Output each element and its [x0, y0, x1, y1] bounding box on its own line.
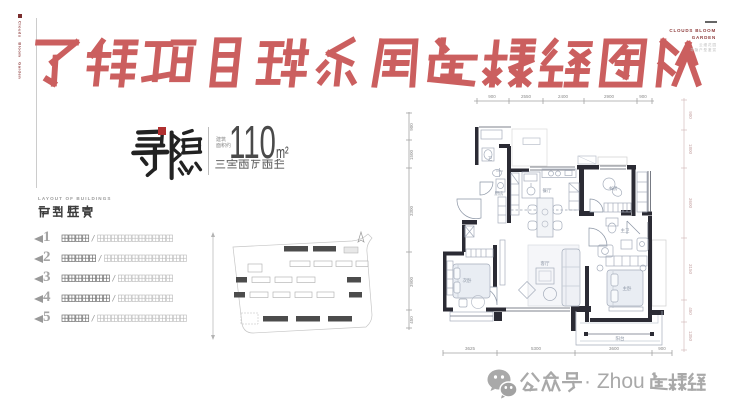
- svg-text:卫: 卫: [488, 156, 493, 161]
- svg-text:2400: 2400: [558, 94, 569, 99]
- svg-text:阳台: 阳台: [616, 335, 625, 342]
- svg-text:主卫: 主卫: [621, 227, 630, 233]
- svg-text:1500: 1500: [409, 149, 414, 160]
- svg-text:2550: 2550: [521, 94, 532, 99]
- svg-text:3900: 3900: [409, 276, 414, 287]
- svg-text:3300: 3300: [409, 205, 414, 216]
- svg-text:3625: 3625: [465, 346, 476, 351]
- svg-text:450: 450: [688, 307, 693, 315]
- svg-text:5300: 5300: [531, 346, 542, 351]
- svg-text:900: 900: [488, 94, 496, 99]
- svg-text:450: 450: [409, 316, 414, 324]
- svg-text:900: 900: [658, 346, 666, 351]
- svg-text:900: 900: [409, 123, 414, 131]
- svg-text:书房: 书房: [609, 185, 618, 192]
- svg-text:客厅: 客厅: [541, 260, 550, 267]
- svg-text:次卧: 次卧: [463, 277, 472, 284]
- svg-text:1800: 1800: [688, 144, 693, 155]
- svg-text:3600: 3600: [688, 198, 693, 209]
- svg-text:1350: 1350: [688, 331, 693, 342]
- svg-text:900: 900: [688, 111, 693, 119]
- svg-text:3600: 3600: [609, 346, 620, 351]
- svg-text:餐厅: 餐厅: [543, 187, 552, 194]
- svg-text:900: 900: [639, 94, 647, 99]
- svg-text:厨房: 厨房: [495, 190, 504, 197]
- svg-text:2900: 2900: [604, 94, 615, 99]
- svg-text:主卧: 主卧: [623, 285, 632, 292]
- svg-text:3150: 3150: [688, 264, 693, 275]
